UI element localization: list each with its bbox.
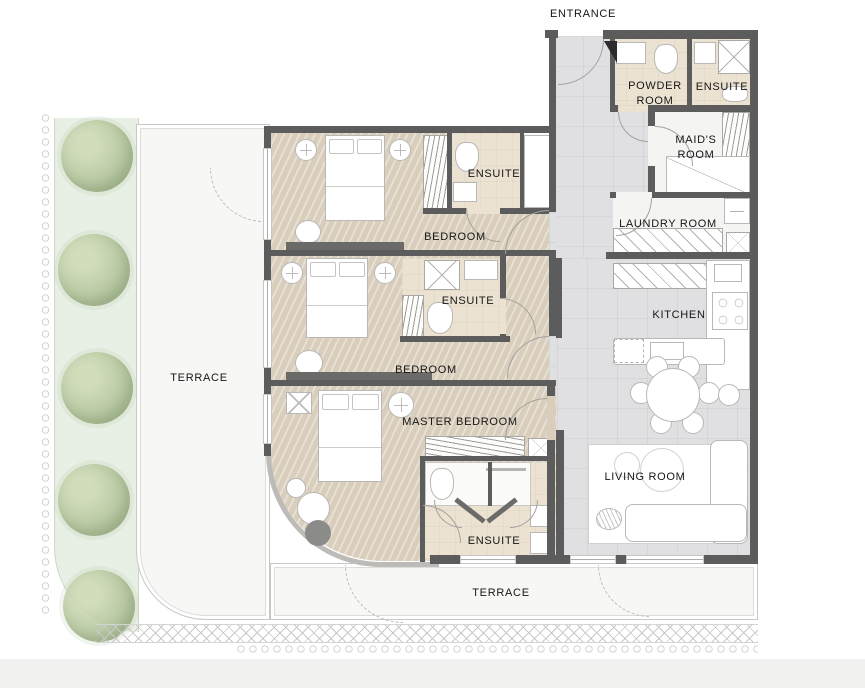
bedroom-1-label: BEDROOM (412, 230, 498, 245)
ensuite-top-label: ENSUITE (687, 80, 757, 95)
master-bedroom-label: MASTER BEDROOM (394, 415, 526, 430)
wall (556, 430, 564, 558)
tree-icon (61, 352, 133, 424)
pillow-icon (322, 394, 349, 410)
shower-icon (718, 40, 750, 74)
blanket-fold (326, 186, 384, 187)
bed-icon (325, 135, 385, 221)
window-icon (263, 148, 272, 240)
maids-room-label: MAID'S ROOM (668, 133, 724, 162)
armchair-icon (295, 220, 321, 244)
wardrobe-icon (402, 295, 424, 338)
terrace-bottom-label: TERRACE (463, 586, 539, 601)
window-icon (263, 280, 272, 368)
door-opening (549, 212, 556, 250)
sink-icon (714, 264, 742, 282)
door-opening (648, 126, 655, 166)
door-opening (547, 396, 555, 440)
pillow-icon (339, 262, 365, 277)
nightstand-icon (286, 392, 312, 414)
wall (549, 256, 556, 340)
shower-icon (486, 468, 526, 471)
wall (603, 30, 758, 39)
door-opening (549, 336, 556, 380)
pillow-icon (310, 262, 336, 277)
sink-icon (453, 182, 477, 202)
bedroom-2-label: BEDROOM (383, 363, 469, 378)
ensuite-2-label: ENSUITE (431, 294, 505, 309)
powder-room-label: POWDER ROOM (624, 79, 686, 108)
bed-icon (318, 390, 382, 482)
sink-icon (464, 260, 498, 280)
pillow-icon (329, 139, 354, 154)
toilet-icon (430, 468, 454, 500)
laundry-room-label: LAUNDRY ROOM (610, 217, 726, 232)
washer-icon (724, 198, 750, 224)
nightstand-icon (389, 139, 411, 161)
entrance-column (604, 41, 617, 63)
wall (488, 462, 492, 506)
ensuite-1-label: ENSUITE (457, 167, 531, 182)
wall (400, 336, 510, 342)
wall (423, 456, 547, 461)
floor-plan: ENTRANCE POWDER ROOM ENSUITE MAID'S ROOM… (0, 0, 865, 688)
blanket-fold (319, 447, 381, 448)
dining-table-icon (646, 368, 700, 422)
tree-icon (58, 234, 130, 306)
wall (447, 133, 452, 209)
window-icon (263, 394, 272, 444)
nightstand-icon (281, 262, 303, 284)
pillow-icon (357, 139, 382, 154)
terrace-door-opening (570, 555, 616, 564)
ruffle-border-bottom (235, 643, 758, 655)
living-room-label: LIVING ROOM (598, 470, 692, 485)
window-icon (626, 555, 704, 564)
tree-icon (61, 120, 133, 192)
window-icon (460, 555, 516, 564)
wall (264, 126, 556, 133)
tree-icon (58, 464, 130, 536)
wall (687, 36, 692, 106)
nightstand-icon (374, 262, 396, 284)
entrance-label: ENTRANCE (545, 7, 621, 22)
terrace-left-label: TERRACE (161, 371, 237, 386)
wall (264, 380, 556, 386)
toilet-icon (654, 44, 678, 74)
sink-icon (616, 42, 646, 64)
chair-icon (698, 382, 720, 404)
island-end-panel (614, 339, 644, 363)
sink-icon (530, 532, 548, 554)
border-diamond-strip (96, 624, 758, 643)
plant-icon (718, 384, 740, 406)
garden-strip (54, 118, 139, 632)
wardrobe-icon (423, 135, 448, 211)
ensuite-master-label: ENSUITE (457, 534, 531, 549)
sink-icon (694, 42, 716, 64)
page-footer-band (0, 659, 865, 688)
blanket-fold (307, 305, 367, 306)
kitchen-label: KITCHEN (634, 308, 724, 323)
bed-icon (306, 258, 368, 338)
washer-icon (726, 232, 750, 254)
ruffle-border-left (38, 112, 54, 617)
nightstand-icon (295, 139, 317, 161)
pouf-icon (596, 508, 622, 530)
pillow-icon (352, 394, 379, 410)
shower-icon (424, 260, 460, 290)
sofa-icon (625, 504, 747, 542)
wall (606, 252, 758, 259)
plant-icon (305, 520, 331, 546)
